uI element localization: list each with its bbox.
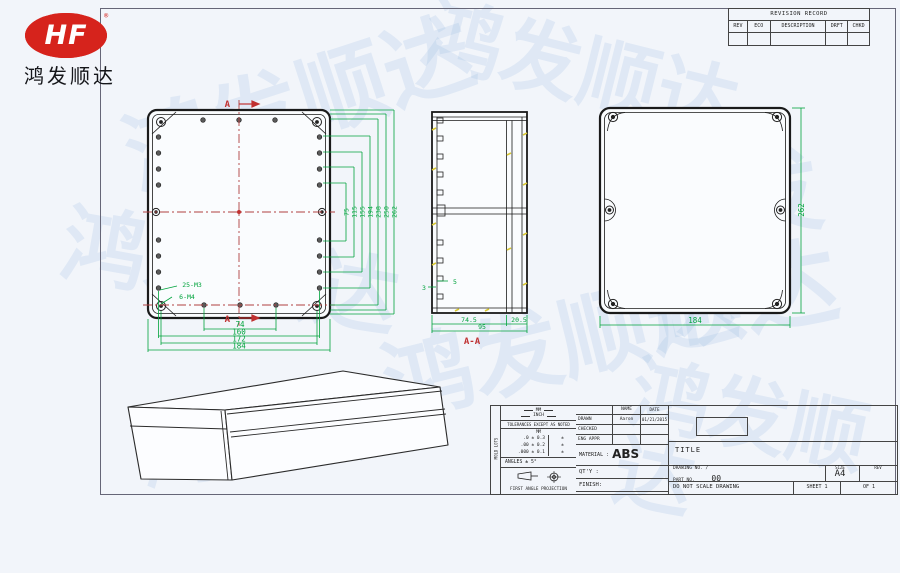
tolerance-heading: TOLERANCES EXCEPT AS NOTED [501,421,576,429]
tol-row-1: .0 ± 0.3 [501,435,549,442]
tol-row-3: .000 ± 0.1 [501,449,549,456]
dim-75: 75 [343,208,351,216]
col-description: DESCRIPTION [771,21,827,32]
rear-dim-262: 262 [797,203,806,217]
rev-cell: REV [859,465,897,481]
units-inch: INCH [523,413,554,418]
title-block-side-strip: MOLD LOTS [491,406,501,494]
callout-25-m3: 25-M3 [182,281,202,289]
revision-record-title: REVISION RECORD [729,9,869,21]
isometric-view [110,360,470,495]
title-label: TITLE [675,446,701,454]
name-header: NAME [613,406,641,414]
tol-mark-1: ± [549,435,576,442]
registered-mark: ® [104,12,108,20]
tol-mark-3: ± [549,449,576,456]
sheet-label: SHEET 1 [794,481,841,494]
revision-empty-row [729,33,869,45]
dim-184: 184 [232,342,246,351]
dim-74-5: 74.5 [461,316,477,324]
units-cell: MM INCH [501,406,576,421]
dim-194: 194 [367,206,375,218]
material-value: ABS [612,447,639,461]
target-symbol-icon [547,471,561,483]
rear-dim-184: 184 [688,316,702,325]
dim-238: 238 [375,206,383,218]
checked-label: CHECKED [576,425,613,434]
dim-155: 155 [359,206,367,218]
drawn-name: Aaron [613,415,641,424]
callout-6-m4: 6-M4 [179,293,195,301]
projection-cell: FIRST ANGLE PROJECTION [501,468,576,494]
title-area: TITLE [669,441,897,466]
company-logo: HF [25,13,107,58]
title-block: MOLD LOTS MM INCH TOLERANCES EXCEPT AS N… [490,405,898,495]
finish-label: FINISH: [576,479,668,492]
drawing-number-cell: DRAWING NO. / PART NO. 00 [669,465,826,482]
section-view: 74.5 20.5 95 5 3 A-A [420,95,550,355]
section-label-a-bottom: A [225,315,231,325]
taper-symbol-icon [517,471,539,481]
rev-label: REV [859,465,897,470]
front-view: A A 74 160 172 184 75 115 155 194 238 2 [140,90,410,380]
tolerance-table: MM .0 ± 0.3± .00 ± 0.2± .000 ± 0.1± [501,429,576,458]
tol-row-2: .00 ± 0.2 [501,442,549,449]
col-eco: ECO [748,21,771,32]
dim-95: 95 [478,323,486,331]
dim-20-5: 20.5 [511,316,527,324]
qty-label: QT'Y : [576,466,668,479]
rear-view: 184 262 [595,100,825,345]
side-strip-text: MOLD LOTS [494,426,499,472]
approval-material-section: NAME DATE DRAWN Aaron 01/21/2015 CHECKED… [576,406,669,494]
dim-262: 262 [391,206,399,218]
section-label-a-top: A [225,100,231,110]
revision-header-row: REV ECO DESCRIPTION DRFT CHKD [729,21,869,33]
col-drft: DRFT [826,21,848,32]
size-value: A4 [821,470,859,479]
angles-tolerance: ANGLES ± 5° [501,458,576,468]
dim-5: 5 [453,278,457,286]
projection-label: FIRST ANGLE PROJECTION [501,487,576,492]
material-label: MATERIAL : [579,452,609,458]
drawn-date: 01/21/2015 [641,415,668,424]
no-scale-note: DO NOT SCALE DRAWING [669,481,794,494]
title-drawing-section: TITLE DRAWING NO. / PART NO. 00 SIZE A4 … [669,406,897,494]
tol-mark-2: ± [549,442,576,449]
dim-3: 3 [422,284,426,292]
size-cell: SIZE A4 [821,465,860,481]
col-rev: REV [729,21,748,32]
sheet-of-label: OF 1 [841,481,897,494]
company-name: 鸿发顺达 [24,60,116,89]
logo-hf-text: HF [44,20,87,51]
revision-record-table: REVISION RECORD REV ECO DESCRIPTION DRFT… [728,8,870,46]
dim-115: 115 [351,206,359,218]
dim-250: 250 [383,206,391,218]
section-title-aa: A-A [464,337,481,347]
eng-appr-label: ENG APPR [576,435,613,444]
logo-placeholder-box [696,417,748,436]
drawing-no-label1: DRAWING NO. / [673,466,825,473]
col-chkd: CHKD [848,21,869,32]
drawn-label: DRAWN [576,415,613,424]
date-header: DATE [641,406,668,414]
